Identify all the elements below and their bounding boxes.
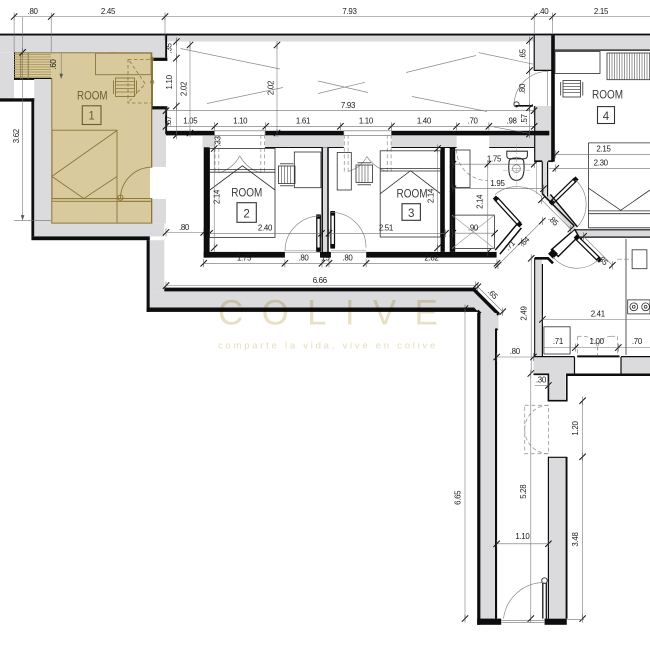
svg-text:.80: .80 [518, 83, 527, 94]
svg-text:COLIVE: COLIVE [218, 294, 456, 333]
svg-text:.57: .57 [164, 116, 173, 126]
svg-text:.70: .70 [468, 117, 479, 126]
svg-text:ROOM: ROOM [592, 90, 623, 102]
svg-text:6.65: 6.65 [453, 490, 462, 505]
svg-text:.80: .80 [28, 7, 39, 16]
svg-text:2.14: 2.14 [427, 188, 436, 203]
svg-text:.80: .80 [298, 254, 309, 263]
svg-text:1.10: 1.10 [233, 117, 248, 126]
svg-text:.85: .85 [547, 214, 561, 228]
svg-text:1.40: 1.40 [417, 117, 432, 126]
svg-text:ROOM: ROOM [77, 91, 108, 103]
svg-text:.71: .71 [503, 239, 516, 252]
svg-text:2.45: 2.45 [101, 7, 116, 16]
svg-text:1.75: 1.75 [237, 254, 252, 263]
svg-text:comparte la vida, vive en coli: comparte la vida, vive en colive [218, 341, 438, 352]
svg-text:.30: .30 [536, 375, 547, 384]
svg-text:1.00: 1.00 [590, 337, 605, 346]
svg-text:.40: .40 [538, 7, 549, 16]
svg-text:1.95: 1.95 [490, 179, 505, 188]
svg-text:.80: .80 [179, 223, 190, 232]
svg-text:.65: .65 [519, 48, 528, 59]
svg-text:15: 15 [321, 254, 330, 263]
svg-text:1.20: 1.20 [571, 421, 580, 436]
svg-text:1: 1 [88, 111, 94, 123]
svg-text:.57: .57 [520, 114, 529, 124]
svg-text:.33: .33 [213, 135, 222, 146]
svg-text:2.14: 2.14 [476, 194, 485, 209]
svg-text:2.14: 2.14 [213, 189, 222, 204]
svg-text:2.49: 2.49 [520, 306, 529, 321]
svg-text:3.48: 3.48 [571, 532, 580, 547]
svg-text:1.10: 1.10 [515, 532, 530, 541]
svg-text:7.93: 7.93 [341, 101, 356, 110]
svg-text:.35: .35 [164, 42, 173, 53]
svg-text:2: 2 [243, 209, 249, 221]
svg-text:3: 3 [408, 208, 414, 220]
svg-text:.80: .80 [510, 347, 521, 356]
svg-text:2.41: 2.41 [591, 309, 605, 318]
svg-text:.80: .80 [342, 254, 353, 263]
svg-text:2.30: 2.30 [594, 159, 609, 168]
svg-text:ROOM: ROOM [231, 188, 262, 200]
svg-text:.71: .71 [553, 337, 563, 346]
svg-text:7.93: 7.93 [342, 7, 357, 16]
svg-text:.65: .65 [486, 287, 500, 301]
svg-text:1.05: 1.05 [183, 117, 198, 126]
svg-text:4: 4 [603, 111, 610, 123]
svg-text:.70: .70 [632, 337, 643, 346]
svg-text:.90: .90 [468, 224, 479, 233]
svg-text:.98: .98 [507, 117, 518, 126]
svg-text:.64: .64 [518, 234, 532, 248]
svg-text:2.02: 2.02 [267, 81, 276, 95]
svg-text:2.51: 2.51 [379, 224, 393, 233]
svg-text:1.10: 1.10 [165, 74, 174, 89]
svg-text:5.28: 5.28 [519, 484, 528, 499]
svg-text:1.61: 1.61 [296, 117, 310, 126]
svg-text:2.02: 2.02 [180, 82, 189, 96]
svg-text:.60: .60 [49, 59, 58, 70]
svg-text:ROOM: ROOM [397, 189, 428, 201]
svg-text:2.15: 2.15 [596, 145, 611, 154]
svg-text:2.40: 2.40 [258, 224, 273, 233]
svg-text:2.15: 2.15 [594, 7, 609, 16]
svg-text:2.82: 2.82 [424, 254, 438, 263]
svg-text:6.66: 6.66 [313, 276, 328, 285]
svg-text:1.10: 1.10 [359, 117, 374, 126]
svg-text:3.62: 3.62 [12, 129, 21, 143]
